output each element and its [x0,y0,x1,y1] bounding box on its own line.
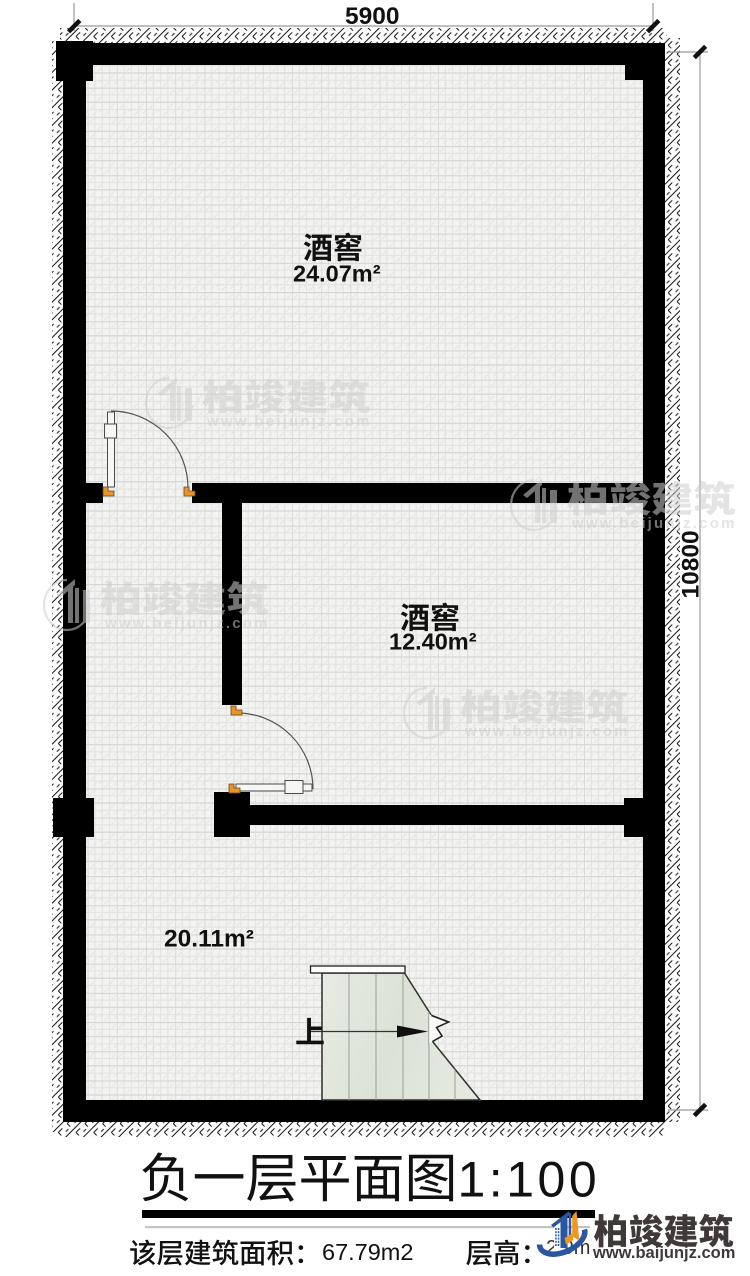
svg-text:10800: 10800 [678,530,705,598]
svg-text:24.07m²: 24.07m² [293,261,381,287]
svg-text:20.11m²: 20.11m² [164,926,254,953]
svg-text:67.79m2: 67.79m2 [322,1239,413,1265]
svg-text:www.baijunjz.com: www.baijunjz.com [592,1244,735,1262]
svg-text:12.40m²: 12.40m² [389,629,477,655]
svg-text:1:100: 1:100 [458,1152,601,1208]
svg-text:5900: 5900 [345,3,400,30]
